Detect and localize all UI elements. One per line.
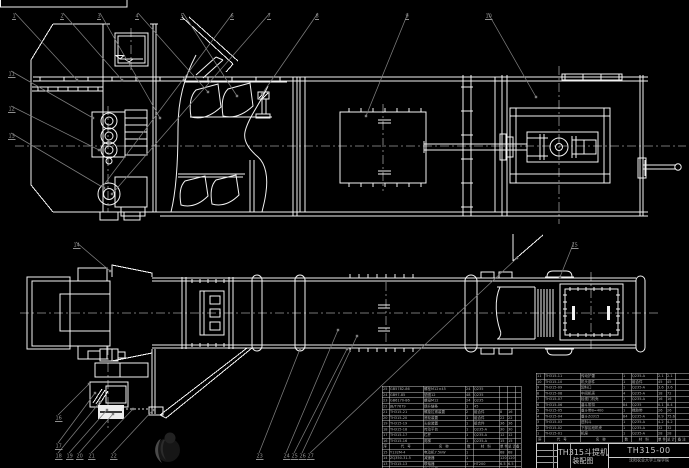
leader-end-dot <box>207 91 209 93</box>
leader-line <box>58 402 100 453</box>
leader-end-dot <box>109 270 111 272</box>
bom-cell: 120 <box>507 455 515 461</box>
leader-end-dot <box>559 276 561 278</box>
bom-header-cell: 名 称 <box>580 437 622 443</box>
leader-line <box>11 71 93 118</box>
leader-end-dot <box>159 117 161 119</box>
bom-left-grid: 25GB5782-86螺栓M12×4524Q23524GB97-85垫圈1248… <box>382 386 522 468</box>
bom-header-cell: 单件 <box>499 444 507 450</box>
leader-end-dot <box>106 409 108 411</box>
bom-header-cell: 备注 <box>675 437 689 443</box>
leader-end-dot <box>92 117 94 119</box>
bom-header-cell: 材 料 <box>631 437 657 443</box>
drawing-number-box: TH315-00 沈阳农业大学工程学院 <box>609 444 689 468</box>
leader-end-dot <box>94 392 96 394</box>
leader-line <box>11 133 104 188</box>
leader-end-dot <box>99 401 101 403</box>
cad-canvas: 1234567891011121314151617181920212223242… <box>0 0 689 468</box>
sheet-name: 装配图 <box>572 457 593 465</box>
organization-name: 沈阳农业大学工程学院 <box>609 458 689 463</box>
bom-cell: 120 <box>499 455 507 461</box>
leader-end-dot <box>356 335 358 337</box>
bom-table-left: 25GB5782-86螺栓M12×4524Q23524GB97-85垫圈1248… <box>382 386 522 468</box>
leader-end-dot <box>236 95 238 97</box>
leader-end-dot <box>111 193 113 195</box>
leader-end-dot <box>365 115 367 117</box>
leader-end-dot <box>121 79 123 81</box>
leader-end-dot <box>88 383 90 385</box>
bom-cell: 75.6 <box>666 414 675 420</box>
leader-line <box>302 336 357 453</box>
leader-line <box>286 330 338 453</box>
leader-line <box>58 384 89 415</box>
leader-end-dot <box>346 348 348 350</box>
leader-line <box>103 13 233 186</box>
leader-line <box>112 13 270 194</box>
leader-end-dot <box>98 149 100 151</box>
bom-header-cell: 总计 <box>507 444 515 450</box>
leader-line <box>113 410 153 453</box>
drawing-number: TH315-00 <box>609 444 689 458</box>
leader-line <box>294 349 347 453</box>
bom-header-cell: 单件 <box>657 437 666 443</box>
bom-right-grid: 11TH315-11传动护罩1Q235-A2.12.110TH315-10机头部… <box>536 373 689 443</box>
bom-header-cell: 代 号 <box>544 437 580 443</box>
leader-end-dot <box>152 409 154 411</box>
leader-line <box>262 13 318 94</box>
title-block-revision-grid <box>537 444 558 468</box>
leader-end-dot <box>132 408 134 410</box>
bom-header-cell: 序 <box>536 437 544 443</box>
leader-end-dot <box>261 93 263 95</box>
leader-line <box>11 106 99 150</box>
leader-line <box>366 13 408 116</box>
leader-line <box>58 393 95 443</box>
leader-end-dot <box>299 348 301 350</box>
leader-line <box>138 13 208 92</box>
bom-header-cell: 数 <box>622 437 631 443</box>
leader-line <box>79 414 113 453</box>
leader-line <box>76 242 110 271</box>
leader-line <box>183 13 237 96</box>
leader-end-dot <box>337 329 339 331</box>
leader-end-dot <box>103 187 105 189</box>
bom-header-cell: 备注 <box>515 444 521 450</box>
leader-end-dot <box>112 413 114 415</box>
leader-line <box>63 13 122 80</box>
leader-end-dot <box>516 257 518 259</box>
drawing-title: TH315斗提机 <box>558 448 608 457</box>
bom-header-row: 序代 号名 称数材 料单件总计备注 <box>536 437 689 443</box>
bom-table-right: 11TH315-11传动护罩1Q235-A2.12.110TH315-10机头部… <box>536 373 689 443</box>
leader-line <box>15 13 77 80</box>
leader-line <box>259 349 300 453</box>
leader-end-dot <box>535 96 537 98</box>
leader-line <box>560 242 574 277</box>
title-block: TH315斗提机 装配图 TH315-00 沈阳农业大学工程学院 <box>536 443 689 468</box>
leader-line <box>488 13 536 97</box>
drawing-name-box: TH315斗提机 装配图 <box>558 444 609 468</box>
leader-end-dot <box>76 79 78 81</box>
bom-header-cell: 总计 <box>666 437 675 443</box>
